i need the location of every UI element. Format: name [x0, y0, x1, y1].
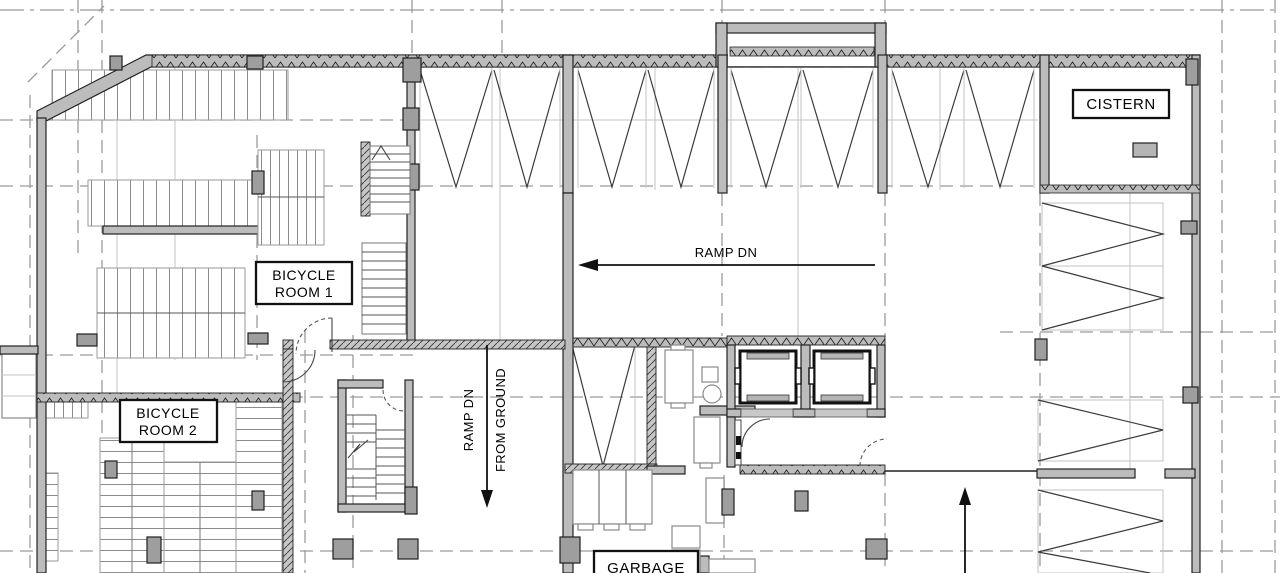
elevator-car-rail [747, 395, 789, 401]
column [866, 539, 887, 559]
column [105, 461, 117, 478]
column [1181, 221, 1197, 234]
tank [665, 350, 693, 403]
ramp-dn-vertical-label: RAMP DN [461, 389, 476, 452]
interior-wall [0, 346, 38, 354]
parking-stall-marking [892, 70, 964, 187]
interior-wall [647, 347, 656, 473]
floor-plan-canvas: RAMP DN RAMP DN FROM GROUND CISTERN BICY… [0, 0, 1280, 573]
stair-wall [338, 504, 413, 512]
interior-wall [1037, 469, 1135, 478]
parking-stall-marking [966, 70, 1034, 187]
door-swing [296, 318, 332, 354]
storage-box [706, 478, 724, 523]
stair-wall [361, 142, 370, 216]
cistern-sump [1133, 143, 1157, 157]
column [110, 56, 122, 70]
wall-pilaster [403, 108, 419, 130]
bicycle-room-2-line2: ROOM 2 [139, 422, 197, 438]
interior-wall [330, 340, 565, 349]
tank-fitting [700, 463, 712, 468]
water-heater [703, 385, 721, 403]
wall-pier [563, 55, 573, 193]
parking-stall-markings [420, 68, 1163, 573]
stair-break-line [348, 440, 368, 458]
column [77, 334, 97, 346]
column [333, 539, 353, 559]
duct [736, 436, 741, 445]
from-ground-label: FROM GROUND [493, 368, 508, 472]
elevator-block [727, 336, 885, 474]
elevator-car-rail [821, 353, 863, 359]
locker-foot [578, 524, 593, 530]
elevator-guide-rail [735, 368, 740, 384]
bicycle-room-1-label: BICYCLE ROOM 1 [256, 262, 352, 304]
interior-wall [700, 556, 709, 573]
door-swing [742, 419, 770, 447]
parking-stall-marking [648, 70, 714, 187]
interior-wall [647, 466, 685, 474]
wall-segment [103, 226, 265, 234]
exterior-wall [152, 55, 718, 67]
bicycle-room-2-label: BICYCLE ROOM 2 [120, 400, 217, 442]
ramp-arrow-head [481, 490, 493, 508]
exterior-wall [1192, 55, 1200, 573]
interior-wall [1165, 469, 1195, 478]
garbage-label-text: GARBAGE [607, 560, 685, 573]
stall-boundary [1038, 490, 1163, 573]
stair-lower [338, 380, 413, 512]
wall-pier [878, 55, 887, 193]
elevator-door-sill [815, 409, 867, 417]
column [248, 333, 268, 344]
interior-wall [283, 340, 293, 349]
elevator-car-rail [821, 395, 863, 401]
bike-rack [88, 180, 260, 226]
elevator-wall [727, 417, 735, 467]
tank-fitting [671, 403, 685, 408]
parking-stall-marking [1038, 400, 1163, 461]
cistern-wall [1040, 55, 1049, 193]
bicycle-room-1-line2: ROOM 1 [275, 284, 333, 300]
storage-lockers [573, 470, 652, 524]
column [795, 491, 808, 511]
locker-foot [604, 524, 619, 530]
bicycle-racks [2, 70, 324, 573]
column [405, 487, 417, 514]
cistern-wall [1040, 185, 1200, 193]
elevator-wall [877, 345, 885, 417]
locker-foot [630, 524, 645, 530]
elevator-wall [727, 336, 885, 345]
cistern-label-text: CISTERN [1086, 96, 1155, 113]
parking-stall-marking [1038, 490, 1163, 552]
equipment-box [702, 367, 718, 382]
door-swing [383, 390, 404, 411]
stair-wall [338, 380, 383, 388]
elevator-car-rail [747, 353, 789, 359]
ramp-dn-label: RAMP DN [695, 245, 758, 260]
bicycle-room-1-line1: BICYCLE [272, 267, 335, 283]
bicycle-room-2-line1: BICYCLE [136, 405, 199, 421]
parking-stall-marking [731, 70, 801, 187]
tank [694, 417, 720, 463]
vent-bay-grille [730, 47, 874, 56]
garbage-label: GARBAGE [594, 551, 698, 573]
exit-arrow-head [959, 487, 971, 505]
elevator-guide-rail [796, 368, 801, 384]
elevator-wall [793, 409, 815, 417]
column [247, 56, 263, 69]
elevator-guide-rail [870, 368, 875, 384]
stair-wall [338, 380, 346, 512]
column [403, 58, 421, 82]
lobby-wall [740, 465, 885, 474]
elevator-wall [727, 409, 741, 417]
column [147, 537, 161, 563]
exit-arrow-annotation [959, 487, 971, 573]
door-swing [860, 439, 887, 466]
column [1186, 59, 1198, 85]
bike-rack [236, 398, 282, 573]
stair-upper [361, 142, 410, 334]
interior-wall [563, 193, 573, 573]
column [1035, 339, 1047, 360]
elevator-wall [867, 409, 885, 417]
parking-stall-marking [1038, 552, 1150, 573]
cistern-label: CISTERN [1073, 90, 1169, 118]
interior-wall [573, 338, 727, 347]
column [722, 489, 734, 515]
duct [736, 452, 741, 459]
stall-boundary [1038, 400, 1163, 461]
vent-bay-wall [716, 23, 886, 33]
floor-plan-drawing: RAMP DN RAMP DN FROM GROUND CISTERN BICY… [0, 0, 1280, 573]
column [1183, 387, 1198, 403]
elevator-door-sill [741, 409, 793, 417]
column [252, 491, 264, 510]
parking-stall-marking [494, 70, 560, 187]
ramp-from-ground-annotation: RAMP DN FROM GROUND [461, 345, 508, 508]
wall-pier [718, 55, 727, 193]
stair-treads [346, 415, 405, 500]
parking-stall-marking [1042, 266, 1163, 330]
shelf-unit [2, 354, 36, 418]
storage-box [672, 526, 700, 548]
column [398, 539, 418, 559]
parking-stall-marking [420, 70, 492, 187]
bike-rack [46, 400, 88, 418]
elevator-wall [727, 345, 735, 417]
stair-flight [370, 146, 410, 214]
interior-wall [283, 349, 293, 573]
elevator-guide-rail [809, 368, 814, 384]
ramp-arrow-head [578, 259, 598, 271]
parking-stall-marking [803, 70, 873, 187]
door-panel [709, 559, 755, 573]
column [560, 537, 580, 563]
parking-stall-marking [1042, 203, 1163, 266]
ramp-dn-annotation: RAMP DN [578, 245, 875, 271]
column [252, 171, 264, 194]
parking-stall-marking [578, 70, 646, 187]
tank-fitting [671, 345, 685, 350]
parking-stall-marking [572, 345, 635, 466]
